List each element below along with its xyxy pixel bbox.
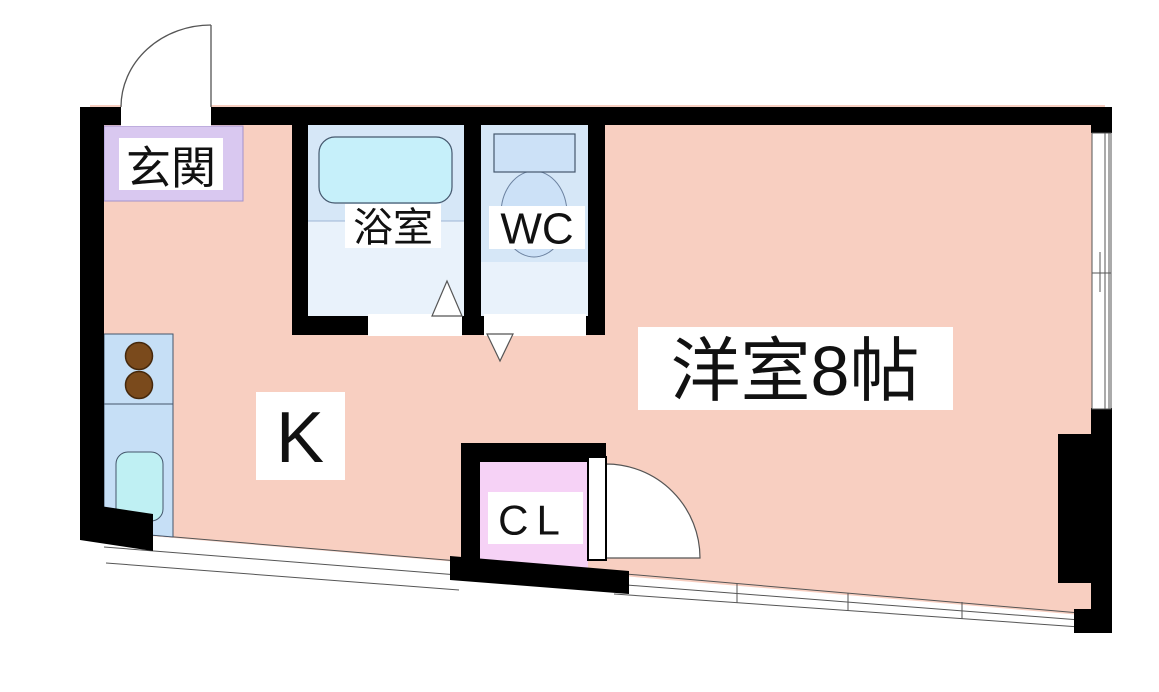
genkan-label: 玄関 bbox=[126, 143, 216, 194]
closet-label: CL bbox=[498, 497, 568, 544]
wc-floor-lower bbox=[481, 262, 588, 316]
wall-left bbox=[80, 107, 104, 519]
wall-right-pillar bbox=[1058, 434, 1112, 583]
kitchen-label: K bbox=[276, 398, 324, 478]
floorplan-drawing: 玄関 浴室 WC K 洋室8帖 CL bbox=[0, 0, 1159, 692]
wall-closet-top bbox=[461, 443, 606, 462]
wall-bath-mid bbox=[464, 107, 481, 335]
floorplan-canvas: 玄関 浴室 WC K 洋室8帖 CL bbox=[0, 0, 1159, 692]
wc-door-gap bbox=[484, 314, 586, 336]
wall-right-below-window bbox=[1091, 408, 1112, 436]
western-room-label: 洋室8帖 bbox=[671, 332, 920, 410]
kitchen-counter bbox=[104, 334, 173, 537]
right-window bbox=[1092, 133, 1111, 409]
bathroom-door-gap bbox=[368, 314, 462, 336]
wall-top-main bbox=[211, 107, 1093, 125]
wall-top-right-corner bbox=[1091, 107, 1112, 133]
entrance-door-icon bbox=[121, 25, 211, 107]
wall-closet-left bbox=[461, 443, 480, 573]
wall-bath-left bbox=[292, 107, 308, 335]
wall-bottom-right-corner bbox=[1074, 609, 1112, 633]
wc-label: WC bbox=[500, 205, 573, 254]
bathtub-icon bbox=[319, 137, 452, 203]
wall-bath-right bbox=[588, 107, 605, 335]
bathroom-label: 浴室 bbox=[353, 206, 433, 250]
toilet-tank-icon bbox=[494, 134, 575, 172]
room-door-leaf-icon bbox=[588, 457, 606, 560]
entrance-door-gap bbox=[121, 105, 211, 126]
